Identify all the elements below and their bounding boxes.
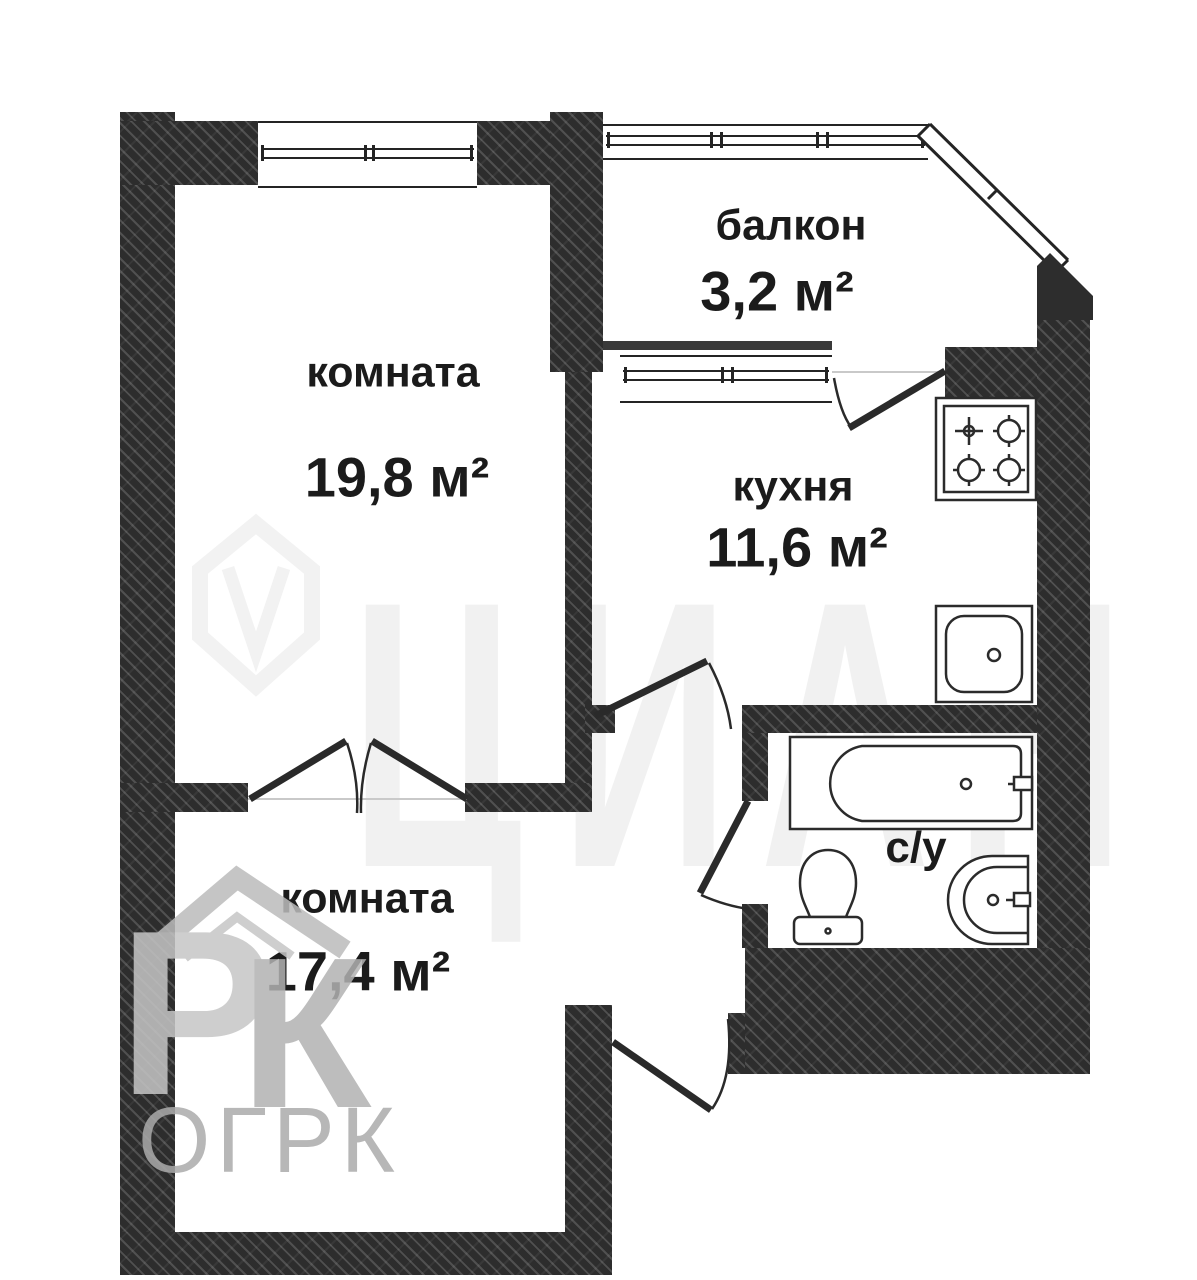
wall-rooms-divider-left <box>120 783 248 812</box>
wall-right-outer <box>1037 295 1090 948</box>
bathroom-label: с/у <box>885 823 946 873</box>
wall-top-left <box>120 121 258 185</box>
wall-entrance-stub <box>728 1013 745 1074</box>
wall-left-outer <box>120 112 175 1275</box>
double-door-threshold <box>248 798 467 800</box>
wall-kitchen-door-stub <box>585 705 615 733</box>
window-room-top <box>258 121 477 188</box>
balcony-label: балкон <box>716 202 867 251</box>
kitchen-label: кухня <box>733 463 854 512</box>
wall-hall-bathroom-upper <box>742 733 768 801</box>
wall-balcony-kitchen-right <box>945 347 1037 397</box>
room-top-area: 19,8 м² <box>305 445 490 510</box>
wall-room-kitchen-divider <box>565 372 592 812</box>
floor-plan: Ц И А Н <box>0 0 1197 1280</box>
room-top-label: комната <box>306 349 479 398</box>
wall-hall-bathroom-lower <box>742 904 768 948</box>
balcony-slab-edge <box>603 341 832 350</box>
wall-kitchen-bathroom <box>742 705 1083 733</box>
window-balcony-kitchen <box>620 355 832 403</box>
balcony-area: 3,2 м² <box>700 259 853 324</box>
faint-watermark-letter: Ц <box>350 545 522 925</box>
wall-bottom-outer <box>120 1232 612 1275</box>
room-bottom-label: комната <box>280 875 453 924</box>
room-bottom-area: 17,4 м² <box>266 939 451 1004</box>
balcony-door-threshold <box>832 371 945 373</box>
wall-rooms-divider-right <box>465 783 592 812</box>
kitchen-area: 11,6 м² <box>706 515 888 580</box>
wall-bathroom-bottom-block <box>745 948 1090 1074</box>
wall-room-balcony-divider <box>550 112 603 372</box>
window-balcony-top <box>603 124 928 160</box>
